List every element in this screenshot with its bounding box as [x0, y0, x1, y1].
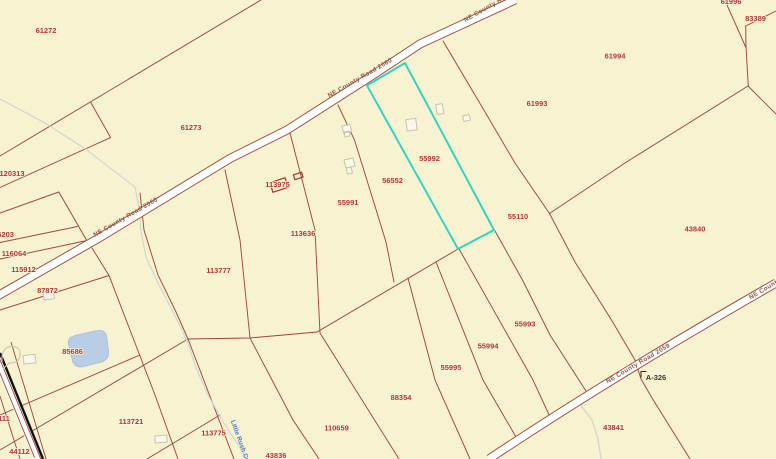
svg-text:120313: 120313	[0, 169, 25, 178]
svg-text:61994: 61994	[605, 52, 627, 61]
svg-text:113775: 113775	[201, 429, 226, 438]
svg-text:43840: 43840	[685, 225, 706, 234]
svg-text:55110: 55110	[508, 212, 528, 221]
svg-text:85686: 85686	[62, 347, 83, 356]
svg-text:61993: 61993	[527, 99, 548, 108]
svg-text:88354: 88354	[391, 393, 413, 402]
svg-text:55994: 55994	[478, 342, 500, 351]
svg-text:87872: 87872	[37, 286, 58, 295]
svg-text:55991: 55991	[338, 198, 359, 207]
svg-text:61272: 61272	[36, 26, 57, 35]
svg-text:113636: 113636	[291, 229, 316, 238]
svg-text:61996: 61996	[721, 0, 742, 6]
svg-text:55993: 55993	[515, 320, 536, 329]
svg-text:113721: 113721	[119, 417, 144, 426]
svg-text:111: 111	[0, 414, 10, 423]
svg-text:56552: 56552	[382, 176, 403, 185]
svg-text:116064: 116064	[2, 249, 27, 258]
svg-text:83389: 83389	[745, 14, 766, 23]
svg-text:113777: 113777	[206, 266, 231, 275]
svg-text:110659: 110659	[324, 424, 349, 433]
svg-text:16203: 16203	[0, 230, 14, 239]
svg-text:115912: 115912	[11, 265, 36, 274]
svg-text:43836: 43836	[266, 451, 287, 459]
svg-text:43841: 43841	[603, 423, 624, 432]
svg-text:55995: 55995	[441, 363, 462, 372]
svg-text:55992: 55992	[419, 154, 440, 163]
svg-text:44112: 44112	[9, 447, 29, 456]
svg-text:61273: 61273	[181, 123, 202, 132]
svg-text:A-326: A-326	[646, 373, 666, 382]
svg-text:113975: 113975	[265, 180, 290, 189]
